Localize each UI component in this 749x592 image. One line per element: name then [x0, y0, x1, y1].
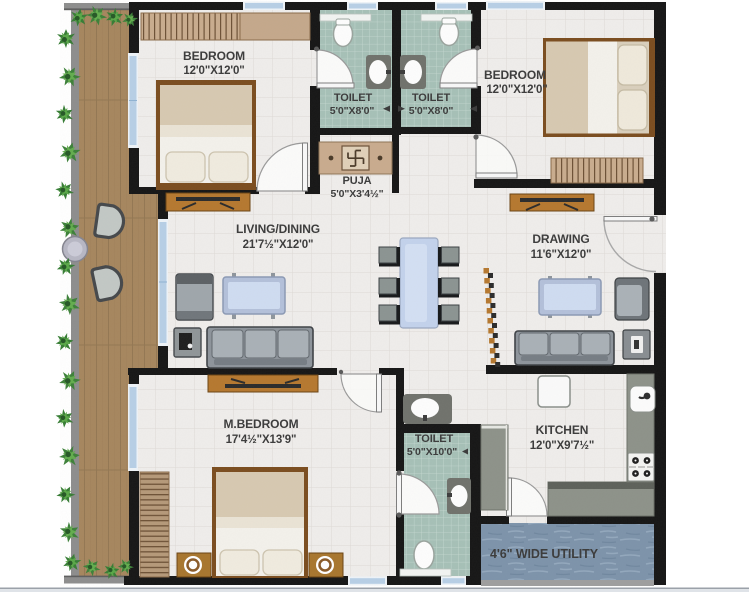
- svg-text:TOILET: TOILET: [412, 92, 451, 104]
- svg-text:17'4½"X13'9": 17'4½"X13'9": [226, 434, 297, 446]
- svg-text:5'0"X3'4½": 5'0"X3'4½": [330, 188, 383, 200]
- svg-text:M.BEDROOM: M.BEDROOM: [223, 417, 298, 431]
- svg-text:DRAWING: DRAWING: [532, 232, 589, 246]
- svg-text:5'0"X8'0": 5'0"X8'0": [330, 105, 375, 117]
- svg-text:12'0"X12'0": 12'0"X12'0": [486, 84, 547, 96]
- svg-text:PUJA: PUJA: [343, 175, 372, 187]
- svg-text:TOILET: TOILET: [415, 433, 454, 445]
- svg-text:BEDROOM: BEDROOM: [183, 49, 245, 63]
- svg-text:5'0"X10'0": 5'0"X10'0": [407, 446, 457, 458]
- svg-text:BEDROOM: BEDROOM: [484, 68, 546, 82]
- svg-text:21'7½"X12'0": 21'7½"X12'0": [243, 239, 314, 251]
- svg-text:12'0"X9'7½": 12'0"X9'7½": [530, 440, 595, 452]
- svg-text:12'0"X12'0": 12'0"X12'0": [183, 65, 244, 77]
- svg-text:5'0"X8'0": 5'0"X8'0": [409, 105, 454, 117]
- svg-text:KITCHEN: KITCHEN: [536, 423, 589, 437]
- svg-text:LIVING/DINING: LIVING/DINING: [236, 222, 320, 236]
- svg-text:4'6" WIDE UTILITY: 4'6" WIDE UTILITY: [490, 547, 599, 561]
- svg-text:TOILET: TOILET: [334, 92, 373, 104]
- svg-text:11'6"X12'0": 11'6"X12'0": [531, 249, 592, 261]
